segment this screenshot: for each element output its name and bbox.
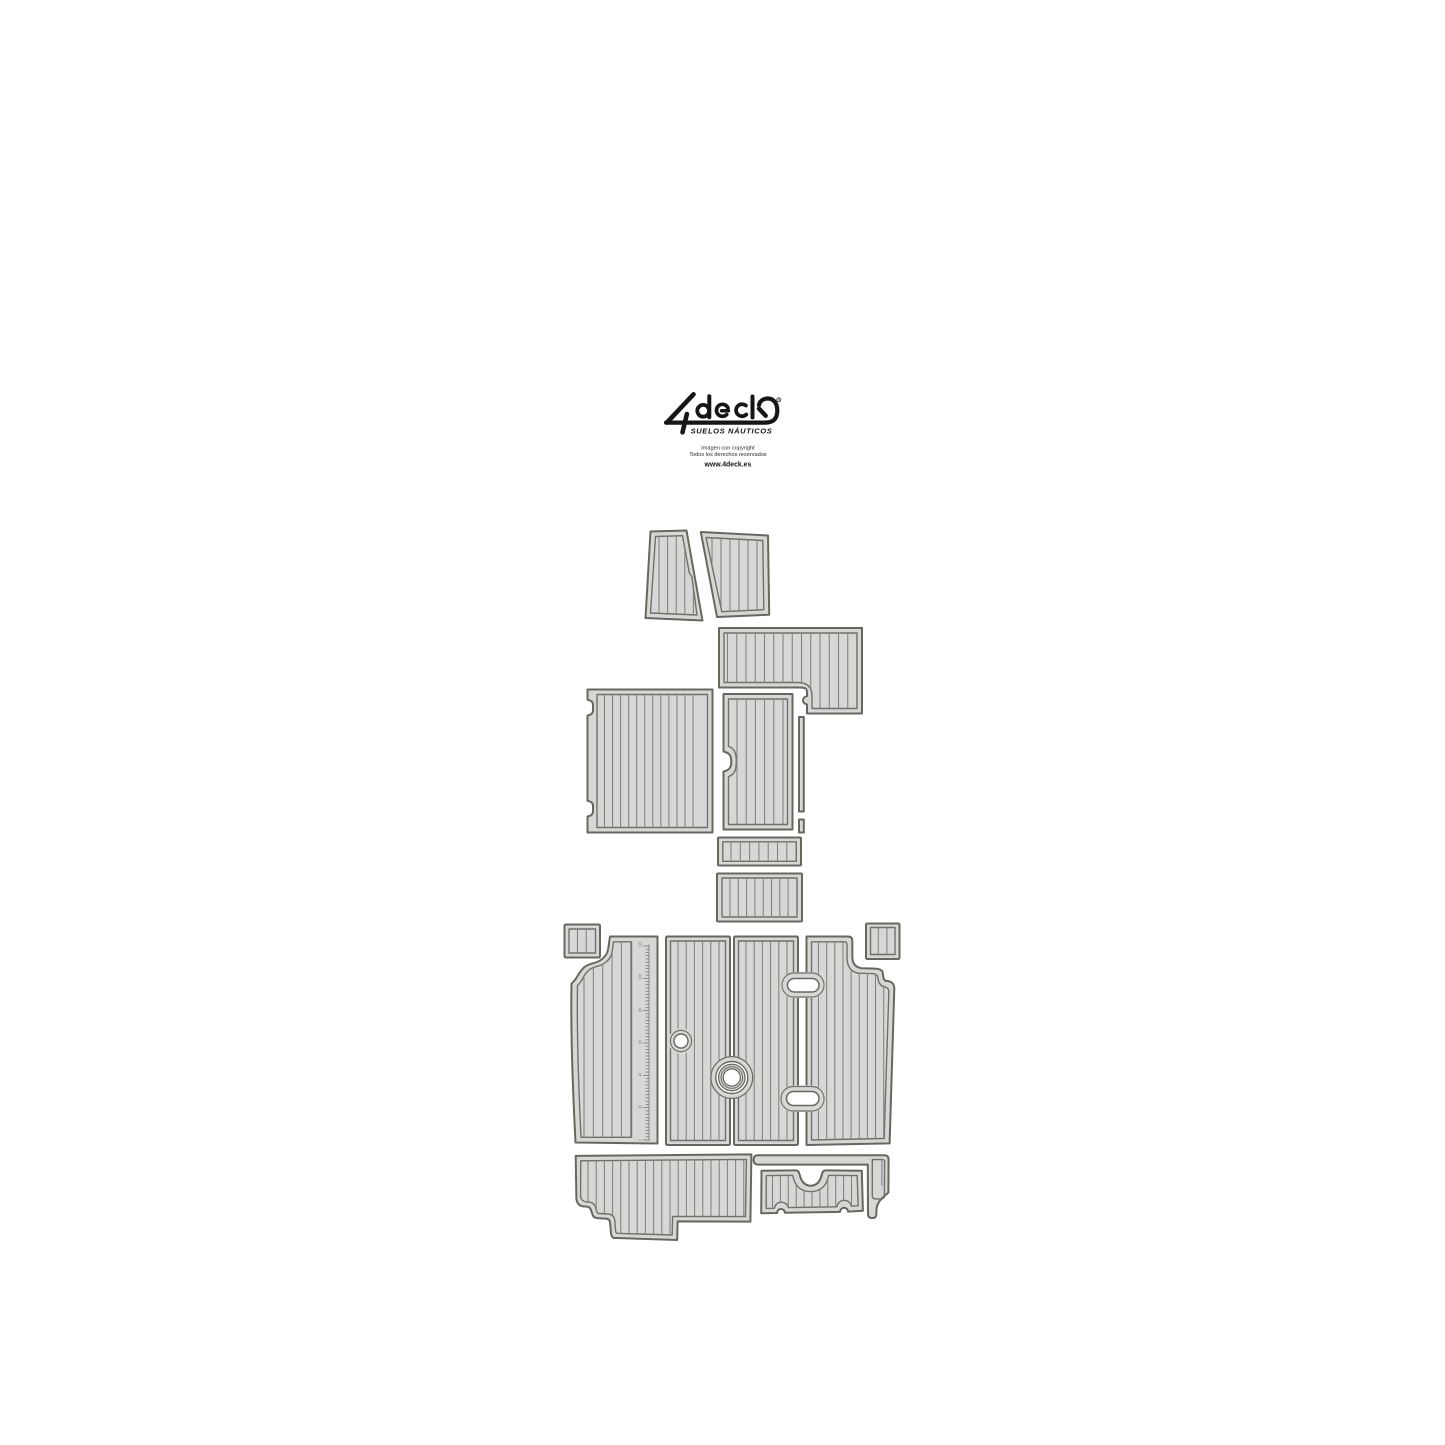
svg-text:60: 60 — [639, 1040, 643, 1044]
svg-text:100: 100 — [639, 974, 643, 980]
svg-text:120: 120 — [639, 941, 643, 947]
svg-text:Imagen con copyright: Imagen con copyright — [701, 445, 755, 451]
svg-text:20: 20 — [639, 1105, 643, 1109]
svg-text:80: 80 — [639, 1008, 643, 1012]
svg-text:Todos los derechos reservados: Todos los derechos reservados — [689, 452, 767, 458]
svg-text:SUELOS NÁUTICOS: SUELOS NÁUTICOS — [691, 427, 773, 436]
svg-text:40: 40 — [639, 1073, 643, 1077]
svg-text:www.4deck.es: www.4deck.es — [703, 461, 751, 468]
svg-text:0: 0 — [639, 1139, 643, 1141]
